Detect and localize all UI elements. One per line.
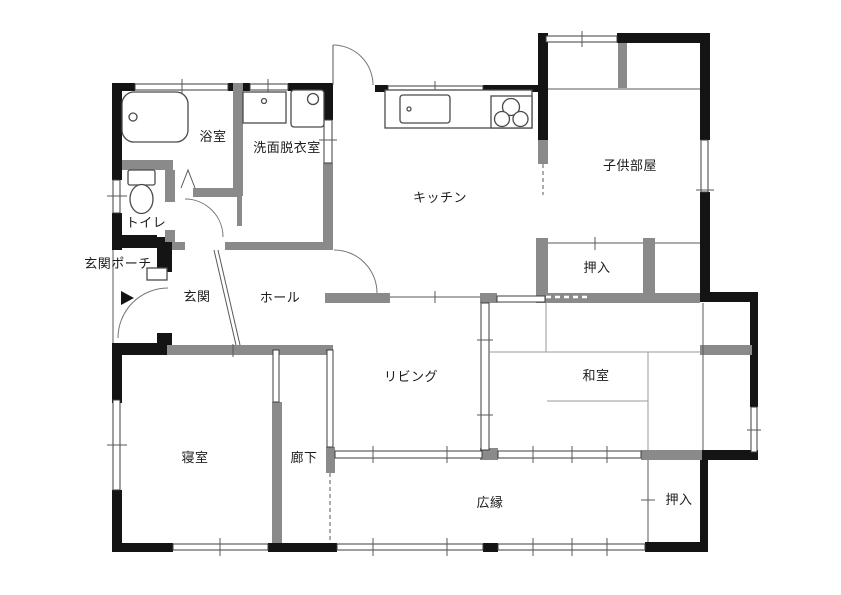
bath-folding-door-mark: [181, 170, 195, 188]
room-label-living: リビング: [384, 370, 438, 385]
toilet-bowl: [130, 185, 153, 214]
bathtub-drain: [129, 113, 137, 121]
window: [701, 140, 708, 192]
kitchen-sink-drain: [407, 107, 411, 111]
wall-segment: [112, 235, 157, 248]
wall-segment: [702, 450, 758, 460]
wall-segment: [323, 163, 333, 250]
genkan-step-line: [214, 250, 236, 345]
wall-segment: [237, 196, 242, 226]
wall-segment: [167, 345, 333, 355]
wall-segment: [641, 450, 702, 460]
backdoor-arc: [333, 45, 373, 85]
room-label-kids-room: 子供部屋: [603, 159, 657, 174]
room-label-japanese-room: 和室: [582, 368, 609, 384]
floor-plan: 浴室 洗面脱衣室 トイレ 玄関ポーチ 玄関 ホール キッチン 子供部屋 押入 リ…: [0, 0, 841, 595]
wall-segment: [538, 90, 548, 140]
wall-segment: [172, 242, 185, 250]
wash-basin: [243, 92, 286, 123]
wall-segment: [700, 192, 710, 302]
sliding-door-track: [327, 350, 333, 447]
wash-basin-faucet: [262, 99, 267, 104]
room-label-closet-upper: 押入: [583, 261, 610, 276]
sliding-door-track: [273, 350, 279, 402]
room-label-closet-lower: 押入: [665, 493, 692, 508]
opening-lines: [113, 89, 703, 542]
floor-plan-canvas: 浴室 洗面脱衣室 トイレ 玄関ポーチ 玄関 ホール キッチン 子供部屋 押入 リ…: [0, 0, 841, 595]
wall-segment: [112, 490, 122, 552]
toilet-tank: [128, 170, 155, 185]
wall-segment: [645, 542, 708, 552]
wall-segment: [325, 293, 390, 303]
wall-segment: [617, 33, 710, 43]
genkan-step-line: [218, 250, 240, 345]
wall-segment: [268, 543, 337, 552]
wall-segment: [112, 343, 167, 355]
wall-segment: [326, 447, 335, 473]
wall-segment: [165, 170, 175, 202]
wall-segment: [700, 460, 708, 543]
sliding-door-track: [481, 303, 489, 450]
room-label-veranda: 広縁: [476, 495, 503, 511]
wall-segment: [700, 345, 752, 355]
wall-segment: [538, 140, 548, 164]
window: [324, 120, 332, 163]
stove-burner: [495, 112, 510, 127]
room-label-bathroom: 浴室: [199, 129, 226, 145]
wall-segment: [112, 543, 173, 552]
wall-segment: [233, 83, 243, 196]
wall-segment: [536, 293, 700, 303]
sliding-door-track: [335, 451, 482, 458]
wall-segment: [710, 292, 758, 302]
wall-segment: [157, 237, 172, 272]
sliding-door-track: [497, 296, 545, 302]
sliding-door-track: [498, 451, 641, 458]
wall-segment: [643, 238, 655, 295]
stove-burner: [513, 112, 528, 127]
wall-segment: [272, 402, 282, 543]
window: [337, 544, 483, 550]
wall-segment: [700, 43, 710, 140]
room-label-corridor: 廊下: [290, 450, 317, 466]
kitchen-door-arc: [334, 250, 377, 293]
washing-machine-dial: [308, 94, 319, 105]
room-label-hall: ホール: [260, 291, 301, 306]
room-label-kitchen: キッチン: [413, 191, 467, 206]
wall-segment: [112, 83, 122, 180]
room-label-entrance-porch: 玄関ポーチ: [84, 257, 152, 272]
room-label-toilet: トイレ: [126, 216, 167, 231]
window: [250, 84, 288, 90]
wall-segment: [165, 230, 175, 242]
room-label-washroom: 洗面脱衣室: [253, 140, 321, 156]
wall-segment: [122, 160, 173, 170]
wall-segment: [618, 43, 627, 88]
wall-segment: [225, 242, 330, 250]
room-label-entrance: 玄関: [183, 290, 210, 305]
lavatory-door-arc: [185, 199, 223, 237]
wall-segment: [483, 543, 498, 552]
wall-segment: [480, 293, 497, 303]
room-label-bedroom: 寝室: [181, 450, 208, 466]
washing-machine: [291, 90, 324, 127]
